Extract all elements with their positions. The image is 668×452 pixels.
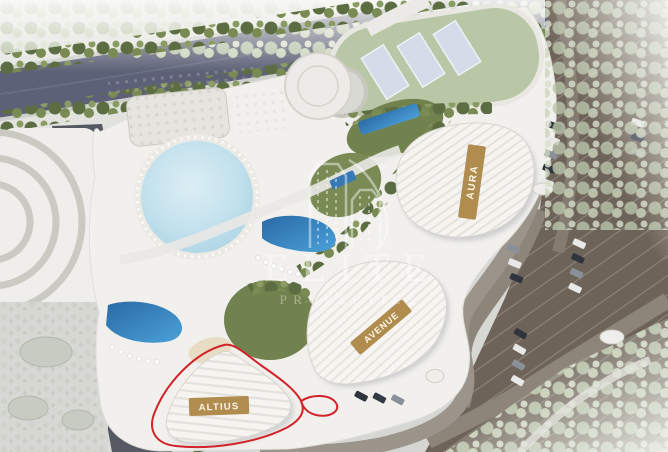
masterplan-aerial-render: AURA AVENUE ALTIUS (0, 0, 668, 452)
round-plaza (285, 53, 351, 119)
altius-label: ALTIUS (198, 401, 239, 413)
neighbor-plaza-southwest (0, 302, 108, 452)
watermark-subtext: PROPERTIES (280, 292, 421, 307)
altius-banner: ALTIUS (189, 396, 250, 416)
watermark-text: ELITE (264, 245, 440, 290)
site-plan-svg: AURA AVENUE ALTIUS (0, 0, 668, 452)
neighbor-building-west (0, 128, 98, 314)
faded-corner-northeast (540, 0, 668, 260)
